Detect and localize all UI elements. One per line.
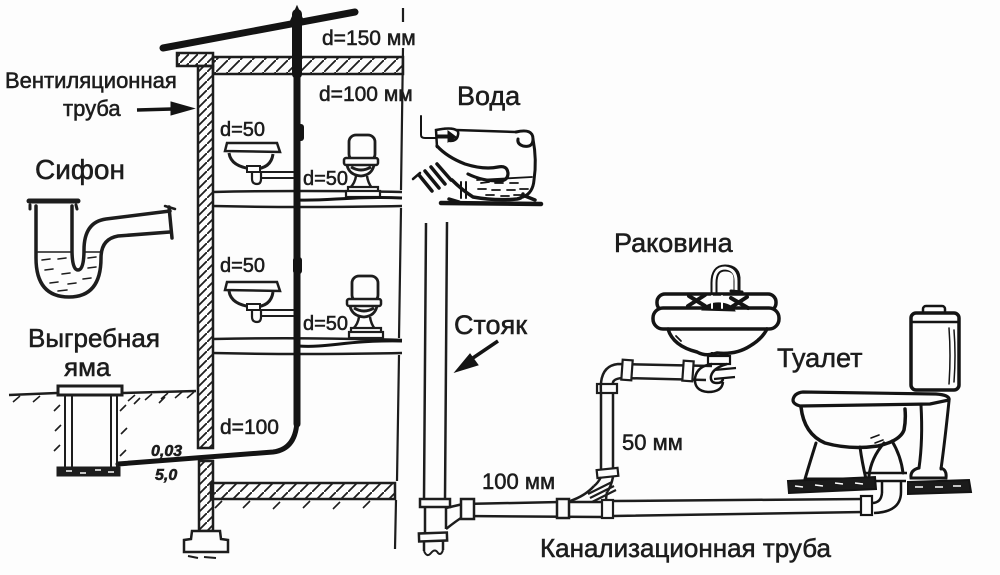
svg-text:яма: яма	[64, 352, 111, 382]
svg-text:d=50: d=50	[303, 313, 348, 335]
svg-text:d=50: d=50	[220, 255, 265, 277]
svg-text:d=50: d=50	[303, 168, 348, 190]
svg-text:Туалет: Туалет	[777, 343, 862, 373]
svg-text:Канализационная труба: Канализационная труба	[540, 533, 832, 563]
svg-text:Стояк: Стояк	[454, 310, 527, 340]
svg-text:Раковина: Раковина	[614, 228, 734, 258]
svg-text:Выгребная: Выгребная	[28, 323, 160, 353]
svg-text:Вентиляционная: Вентиляционная	[5, 68, 177, 93]
svg-text:100 мм: 100 мм	[482, 469, 555, 494]
svg-text:труба: труба	[63, 96, 121, 121]
svg-text:d=150 мм: d=150 мм	[322, 27, 416, 50]
svg-text:d=100 мм: d=100 мм	[319, 83, 413, 106]
svg-text:50 мм: 50 мм	[622, 430, 683, 455]
svg-text:Сифон: Сифон	[35, 154, 125, 185]
svg-text:d=50: d=50	[220, 119, 265, 141]
svg-text:0,03: 0,03	[151, 443, 182, 460]
svg-text:d=100: d=100	[220, 416, 279, 439]
svg-text:5,0: 5,0	[155, 467, 177, 484]
svg-text:Вода: Вода	[457, 81, 521, 111]
